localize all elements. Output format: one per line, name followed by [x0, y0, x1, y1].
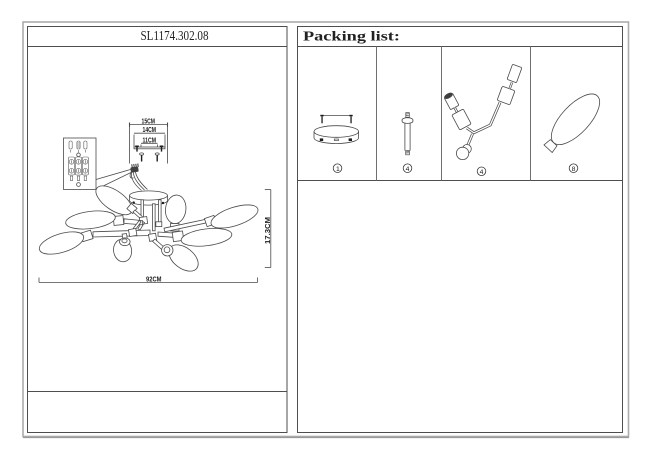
svg-text:11CM: 11CM [143, 135, 157, 144]
svg-text:92CM: 92CM [146, 274, 162, 283]
svg-text:8: 8 [572, 166, 576, 173]
svg-text:SL1174.302.08: SL1174.302.08 [141, 29, 209, 44]
svg-text:1: 1 [336, 166, 340, 173]
svg-text:17.3CM: 17.3CM [263, 217, 272, 244]
svg-text:14CM: 14CM [143, 125, 157, 134]
svg-text:4: 4 [406, 166, 410, 173]
svg-text:4: 4 [480, 169, 484, 176]
svg-text:Packing list:: Packing list: [303, 29, 400, 44]
